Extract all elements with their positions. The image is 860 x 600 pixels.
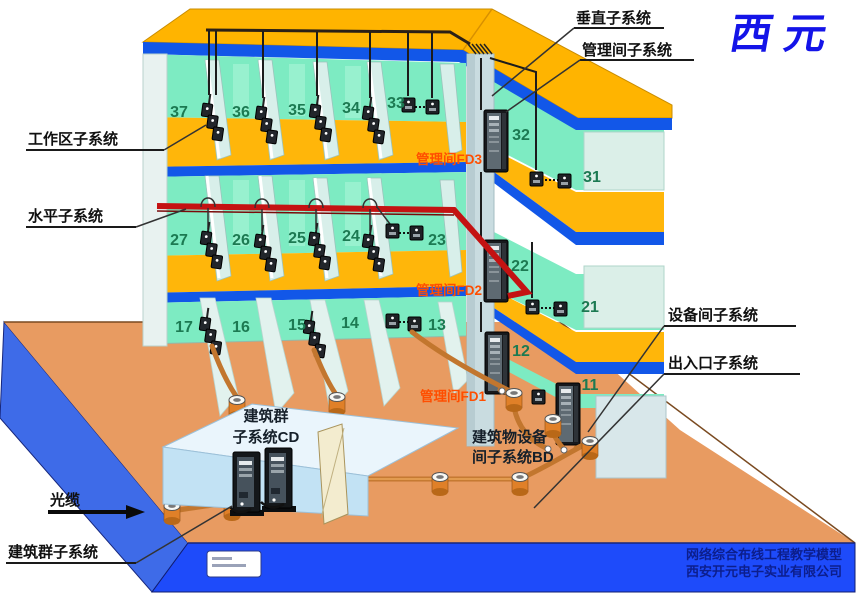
label-horizontal-subsystem: 水平子系统	[28, 207, 103, 225]
label-vertical-subsystem: 垂直子系统	[576, 9, 651, 27]
label-management-subsystem: 管理间子系统	[582, 41, 672, 59]
room-number: 33	[387, 95, 405, 112]
base-label-plate	[207, 551, 261, 577]
footer-company-name: 西安开元电子实业有限公司	[686, 564, 842, 579]
room-number: 26	[232, 232, 250, 249]
room-number: 34	[342, 100, 360, 117]
room-number: 37	[170, 104, 188, 121]
room-number: 14	[341, 315, 359, 332]
room-21-wall	[584, 266, 664, 328]
label-optical-cable: 光缆	[49, 491, 80, 509]
server-tower	[233, 452, 260, 512]
label-fd3: 管理间FD3	[416, 151, 482, 167]
room-number: 22	[511, 258, 529, 275]
cd-label-line2: 子系统CD	[233, 428, 300, 446]
room-number: 11	[582, 377, 599, 394]
footer-model-name: 网络综合布线工程教学模型	[686, 547, 842, 562]
bd-label-line2: 间子系统BD	[472, 448, 554, 466]
room-number: 27	[170, 232, 188, 249]
cd-label-line1: 建筑群	[243, 407, 288, 425]
rack-fd3	[484, 110, 508, 172]
room-number: 36	[232, 104, 250, 121]
building-left-column	[143, 54, 167, 346]
label-fd1: 管理间FD1	[420, 388, 486, 404]
manhole	[512, 473, 528, 497]
room-number: 13	[428, 317, 446, 334]
room-number: 21	[581, 299, 599, 316]
manhole	[329, 393, 345, 417]
room-number: 16	[232, 319, 250, 336]
manhole	[545, 415, 561, 439]
room-number: 31	[583, 169, 601, 186]
manhole	[506, 389, 522, 413]
manhole	[432, 473, 448, 497]
room-number: 24	[342, 228, 360, 245]
label-campus-subsystem: 建筑群子系统	[8, 543, 98, 561]
cabling-diagram: 网络综合布线工程教学模型 西安开元电子实业有限公司	[0, 0, 860, 600]
label-entrance-subsystem: 出入口子系统	[668, 354, 758, 372]
server-tower	[265, 448, 292, 508]
label-work-area-subsystem: 工作区子系统	[28, 130, 118, 148]
room-number: 15	[288, 317, 306, 334]
room-number: 23	[428, 232, 446, 249]
room-number: 12	[512, 343, 530, 360]
bd-label-line1: 建筑物设备	[472, 428, 548, 446]
room-number: 17	[175, 319, 193, 336]
label-fd2: 管理间FD2	[416, 282, 482, 298]
label-equipment-room-subsystem: 设备间子系统	[668, 306, 758, 324]
room-number: 25	[288, 230, 306, 247]
diagram-canvas: 网络综合布线工程教学模型 西安开元电子实业有限公司	[0, 0, 860, 600]
room-number: 35	[288, 102, 306, 119]
room-number: 32	[512, 127, 530, 144]
brand-logo: 西元	[726, 10, 842, 57]
